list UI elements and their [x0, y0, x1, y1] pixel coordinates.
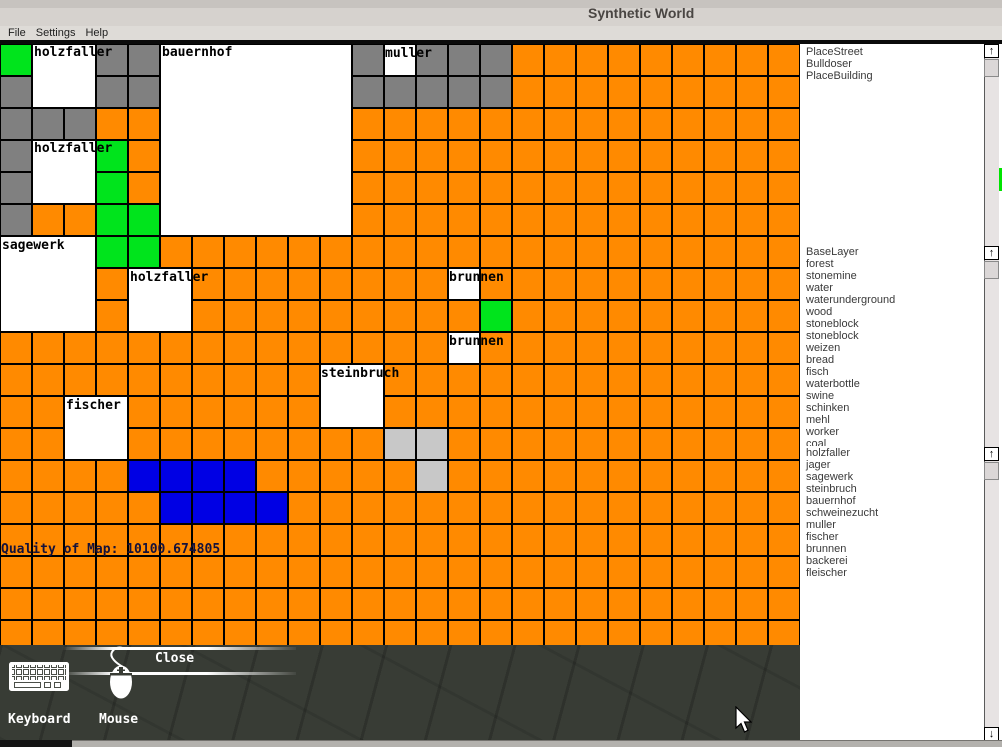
map-cell[interactable] — [512, 460, 544, 492]
map-cell[interactable] — [736, 428, 768, 460]
map-cell[interactable] — [768, 140, 800, 172]
map-cell[interactable] — [544, 44, 576, 76]
map-cell[interactable] — [576, 44, 608, 76]
map-cell[interactable] — [416, 236, 448, 268]
map-cell[interactable] — [544, 524, 576, 556]
map-cell[interactable] — [640, 332, 672, 364]
map-cell[interactable] — [608, 460, 640, 492]
map-cell[interactable] — [576, 556, 608, 588]
layer-stoneblock[interactable]: stoneblock — [800, 318, 983, 330]
map-cell[interactable] — [384, 620, 416, 645]
map-cell[interactable] — [672, 620, 704, 645]
map-cell[interactable] — [736, 620, 768, 645]
map-cell[interactable] — [288, 364, 320, 396]
map-cell[interactable] — [768, 268, 800, 300]
map-cell[interactable] — [640, 588, 672, 620]
map-cell[interactable] — [0, 620, 32, 645]
map-cell[interactable] — [544, 588, 576, 620]
map-cell[interactable] — [576, 620, 608, 645]
mouse-label[interactable]: Mouse — [99, 713, 138, 727]
map-cell[interactable] — [736, 76, 768, 108]
map-cell[interactable] — [256, 300, 288, 332]
map-cell[interactable] — [480, 396, 512, 428]
map-cell[interactable] — [736, 108, 768, 140]
map-cell[interactable] — [32, 588, 64, 620]
map-cell[interactable] — [512, 492, 544, 524]
map-cell[interactable] — [736, 44, 768, 76]
map-cell[interactable] — [448, 364, 480, 396]
map-cell[interactable] — [416, 364, 448, 396]
map-cell[interactable] — [704, 204, 736, 236]
map-cell[interactable] — [448, 588, 480, 620]
map-cell[interactable] — [672, 492, 704, 524]
layer-water[interactable]: water — [800, 282, 983, 294]
map-cell[interactable] — [320, 524, 352, 556]
map-cell[interactable] — [640, 556, 672, 588]
map-cell[interactable] — [512, 524, 544, 556]
map-cell[interactable] — [672, 76, 704, 108]
map-cell[interactable] — [0, 332, 32, 364]
map-cell[interactable] — [0, 460, 32, 492]
map-cell[interactable] — [128, 332, 160, 364]
map-cell[interactable] — [608, 300, 640, 332]
map-cell[interactable] — [704, 236, 736, 268]
map-cell[interactable] — [288, 460, 320, 492]
menu-item-settings[interactable]: Settings — [36, 26, 76, 40]
map-cell[interactable] — [0, 396, 32, 428]
map-cell[interactable] — [352, 268, 384, 300]
map-cell[interactable] — [224, 428, 256, 460]
map-cell[interactable] — [704, 428, 736, 460]
map-cell[interactable] — [768, 620, 800, 645]
layer-fisch[interactable]: fisch — [800, 366, 983, 378]
map-cell[interactable] — [448, 524, 480, 556]
map-cell[interactable] — [352, 556, 384, 588]
map-cell[interactable] — [192, 396, 224, 428]
map-cell[interactable] — [288, 300, 320, 332]
map-cell[interactable] — [736, 204, 768, 236]
map-cell[interactable] — [384, 460, 416, 492]
map-cell[interactable] — [352, 428, 384, 460]
map-cell[interactable] — [448, 204, 480, 236]
map-cell[interactable] — [544, 620, 576, 645]
map-cell[interactable] — [768, 588, 800, 620]
map-cell[interactable] — [288, 268, 320, 300]
map-cell[interactable] — [448, 492, 480, 524]
map-cell[interactable] — [384, 172, 416, 204]
map-cell[interactable] — [672, 460, 704, 492]
map-cell[interactable] — [224, 236, 256, 268]
map-cell[interactable] — [480, 492, 512, 524]
layer-baselayer[interactable]: BaseLayer — [800, 246, 983, 258]
map-cell[interactable] — [480, 172, 512, 204]
map-cell[interactable] — [768, 556, 800, 588]
map-cell[interactable] — [416, 620, 448, 645]
map-cell[interactable] — [256, 428, 288, 460]
map-cell[interactable] — [480, 460, 512, 492]
map-cell[interactable] — [192, 492, 224, 524]
map-cell[interactable] — [768, 172, 800, 204]
map-cell[interactable] — [672, 172, 704, 204]
map-cell[interactable] — [64, 556, 96, 588]
map-cell[interactable] — [96, 268, 128, 300]
map-cell[interactable] — [448, 172, 480, 204]
layer-stonemine[interactable]: stonemine — [800, 270, 983, 282]
map-cell[interactable] — [256, 492, 288, 524]
map-cell[interactable] — [640, 76, 672, 108]
map-cell[interactable] — [512, 44, 544, 76]
map-cell[interactable] — [480, 108, 512, 140]
layer-waterbottle[interactable]: waterbottle — [800, 378, 983, 390]
map-cell[interactable] — [448, 460, 480, 492]
map-cell[interactable] — [256, 236, 288, 268]
building-option-fischer[interactable]: fischer — [800, 531, 983, 543]
map-cell[interactable] — [512, 76, 544, 108]
building-option-brunnen[interactable]: brunnen — [800, 543, 983, 555]
map-cell[interactable] — [384, 492, 416, 524]
map-cell[interactable] — [416, 76, 448, 108]
map-cell[interactable] — [160, 620, 192, 645]
map-cell[interactable] — [384, 556, 416, 588]
map-cell[interactable] — [736, 364, 768, 396]
map-cell[interactable] — [768, 300, 800, 332]
scroll-up-icon[interactable]: ↑ — [984, 447, 999, 461]
map-cell[interactable] — [512, 428, 544, 460]
map-cell[interactable] — [224, 268, 256, 300]
map-cell[interactable] — [736, 140, 768, 172]
map-cell[interactable] — [704, 140, 736, 172]
map-cell[interactable] — [160, 556, 192, 588]
map-cell[interactable] — [768, 428, 800, 460]
map-cell[interactable] — [32, 556, 64, 588]
map-cell[interactable] — [384, 588, 416, 620]
map-cell[interactable] — [672, 556, 704, 588]
map-cell[interactable] — [160, 396, 192, 428]
map-cell[interactable] — [512, 140, 544, 172]
map-cell[interactable] — [608, 108, 640, 140]
map-cell[interactable] — [576, 300, 608, 332]
map-cell[interactable] — [160, 364, 192, 396]
map-cell[interactable] — [192, 300, 224, 332]
map-cell[interactable] — [320, 428, 352, 460]
map-cell[interactable] — [224, 332, 256, 364]
map-cell[interactable] — [544, 492, 576, 524]
scroll-up-icon[interactable]: ↑ — [984, 44, 999, 58]
hscrollbar-thumb[interactable] — [72, 740, 1002, 747]
map-cell[interactable] — [96, 300, 128, 332]
map-cell[interactable] — [192, 364, 224, 396]
map-cell[interactable] — [0, 364, 32, 396]
building-option-jager[interactable]: jager — [800, 459, 983, 471]
map-cell[interactable] — [512, 588, 544, 620]
map-cell[interactable] — [576, 108, 608, 140]
map-cell[interactable] — [320, 460, 352, 492]
layer-wood[interactable]: wood — [800, 306, 983, 318]
map-cell[interactable] — [448, 108, 480, 140]
map-cell[interactable] — [352, 44, 384, 76]
map-cell[interactable] — [384, 140, 416, 172]
map-cell[interactable] — [192, 236, 224, 268]
map-cell[interactable] — [704, 44, 736, 76]
map-cell[interactable] — [576, 204, 608, 236]
map-cell[interactable] — [224, 460, 256, 492]
map-cell[interactable] — [640, 140, 672, 172]
map-cell[interactable] — [160, 428, 192, 460]
map-cell[interactable] — [448, 76, 480, 108]
map-cell[interactable] — [416, 556, 448, 588]
map-cell[interactable] — [640, 460, 672, 492]
map-cell[interactable] — [352, 460, 384, 492]
map-cell[interactable] — [480, 428, 512, 460]
map-cell[interactable] — [608, 588, 640, 620]
map-cell[interactable] — [736, 556, 768, 588]
map-cell[interactable] — [128, 140, 160, 172]
map-cell[interactable] — [128, 364, 160, 396]
map-cell[interactable] — [64, 108, 96, 140]
map-cell[interactable] — [32, 204, 64, 236]
map-cell[interactable] — [384, 428, 416, 460]
map-cell[interactable] — [416, 172, 448, 204]
map-cell[interactable] — [768, 44, 800, 76]
map-cell[interactable] — [192, 460, 224, 492]
map-cell[interactable] — [608, 140, 640, 172]
map-cell[interactable] — [192, 556, 224, 588]
map-cell[interactable] — [768, 76, 800, 108]
map-cell[interactable] — [576, 236, 608, 268]
scrollbar-track[interactable] — [984, 44, 999, 741]
map-cell[interactable] — [512, 620, 544, 645]
map-cell[interactable] — [128, 492, 160, 524]
map-cell[interactable] — [256, 268, 288, 300]
map-cell[interactable] — [224, 396, 256, 428]
map-cell[interactable] — [448, 140, 480, 172]
map-cell[interactable] — [352, 204, 384, 236]
map-cell[interactable] — [576, 428, 608, 460]
tool-bulldoser[interactable]: Bulldoser — [800, 58, 983, 70]
map-cell[interactable] — [544, 428, 576, 460]
map-cell[interactable] — [576, 140, 608, 172]
map-cell[interactable] — [512, 172, 544, 204]
map-cell[interactable] — [320, 556, 352, 588]
map-cell[interactable] — [352, 76, 384, 108]
map-cell[interactable] — [672, 332, 704, 364]
map-cell[interactable] — [704, 108, 736, 140]
map-cell[interactable] — [672, 44, 704, 76]
map-cell[interactable] — [256, 332, 288, 364]
map-cell[interactable] — [608, 428, 640, 460]
scrollbar-thumb[interactable] — [984, 462, 999, 480]
map-cell[interactable] — [64, 588, 96, 620]
map-cell[interactable] — [96, 236, 128, 268]
map-cell[interactable] — [608, 620, 640, 645]
map-cell[interactable] — [288, 428, 320, 460]
map-cell[interactable] — [672, 140, 704, 172]
map-cell[interactable] — [160, 588, 192, 620]
map-cell[interactable] — [320, 268, 352, 300]
map-cell[interactable] — [0, 140, 32, 172]
map-cell[interactable] — [704, 524, 736, 556]
map-cell[interactable] — [672, 204, 704, 236]
keyboard-icon[interactable] — [9, 662, 69, 691]
map-cell[interactable] — [448, 428, 480, 460]
map-cell[interactable] — [320, 300, 352, 332]
map-cell[interactable] — [704, 492, 736, 524]
map-cell[interactable] — [448, 44, 480, 76]
map-cell[interactable] — [0, 204, 32, 236]
map-cell[interactable] — [480, 236, 512, 268]
scrollbar-thumb[interactable] — [984, 59, 999, 77]
map-cell[interactable] — [704, 268, 736, 300]
map-cell[interactable] — [0, 492, 32, 524]
map-cell[interactable] — [256, 396, 288, 428]
map-cell[interactable] — [224, 300, 256, 332]
map-cell[interactable] — [512, 396, 544, 428]
map-cell[interactable] — [352, 588, 384, 620]
map-cell[interactable] — [672, 236, 704, 268]
map-cell[interactable] — [608, 556, 640, 588]
map-cell[interactable] — [544, 396, 576, 428]
map-cell[interactable] — [544, 140, 576, 172]
map-cell[interactable] — [96, 172, 128, 204]
map-cell[interactable] — [640, 300, 672, 332]
map-cell[interactable] — [256, 588, 288, 620]
map-cell[interactable] — [96, 460, 128, 492]
map-cell[interactable] — [32, 620, 64, 645]
map-cell[interactable] — [640, 492, 672, 524]
building-option-holzfaller[interactable]: holzfaller — [800, 447, 983, 459]
scroll-down-icon[interactable]: ↓ — [984, 727, 999, 741]
map-cell[interactable] — [96, 620, 128, 645]
map-cell[interactable] — [672, 396, 704, 428]
map-cell[interactable] — [0, 588, 32, 620]
layer-waterunderground[interactable]: waterunderground — [800, 294, 983, 306]
map-cell[interactable] — [256, 364, 288, 396]
tool-placestreet[interactable]: PlaceStreet — [800, 46, 983, 58]
map-cell[interactable] — [704, 332, 736, 364]
map-cell[interactable] — [704, 396, 736, 428]
map-cell[interactable] — [704, 556, 736, 588]
map-cell[interactable] — [224, 620, 256, 645]
map-cell[interactable] — [768, 236, 800, 268]
map-cell[interactable] — [0, 76, 32, 108]
map-cell[interactable] — [416, 396, 448, 428]
map-cell[interactable] — [512, 364, 544, 396]
map-cell[interactable] — [0, 428, 32, 460]
map-cell[interactable] — [672, 364, 704, 396]
map-cell[interactable] — [64, 492, 96, 524]
map-cell[interactable] — [576, 172, 608, 204]
map-cell[interactable] — [704, 76, 736, 108]
map-cell[interactable] — [352, 524, 384, 556]
map-cell[interactable] — [352, 300, 384, 332]
map-cell[interactable] — [96, 492, 128, 524]
close-button[interactable]: Close — [155, 652, 194, 666]
map-cell[interactable] — [640, 172, 672, 204]
map-cell[interactable] — [704, 172, 736, 204]
map-cell[interactable] — [544, 556, 576, 588]
map-cell[interactable] — [480, 588, 512, 620]
map-cell[interactable] — [704, 620, 736, 645]
map-cell[interactable] — [96, 364, 128, 396]
map-cell[interactable] — [448, 300, 480, 332]
map-cell[interactable] — [448, 236, 480, 268]
map-cell[interactable] — [544, 460, 576, 492]
menu-item-help[interactable]: Help — [85, 26, 108, 40]
map-cell[interactable] — [128, 236, 160, 268]
map-cell[interactable] — [160, 332, 192, 364]
map-cell[interactable] — [768, 460, 800, 492]
map-cell[interactable] — [32, 396, 64, 428]
map-cell[interactable] — [768, 524, 800, 556]
map-cell[interactable] — [96, 204, 128, 236]
layer-schinken[interactable]: schinken — [800, 402, 983, 414]
map-cell[interactable] — [192, 428, 224, 460]
map-cell[interactable] — [384, 236, 416, 268]
map-cell[interactable] — [576, 588, 608, 620]
map-cell[interactable] — [672, 524, 704, 556]
map-cell[interactable] — [544, 300, 576, 332]
map-cell[interactable] — [416, 204, 448, 236]
map-cell[interactable] — [288, 236, 320, 268]
map-cell[interactable] — [320, 492, 352, 524]
map-cell[interactable] — [544, 236, 576, 268]
map-cell[interactable] — [96, 588, 128, 620]
map-cell[interactable] — [256, 524, 288, 556]
map-cell[interactable] — [0, 556, 32, 588]
map-cell[interactable] — [64, 460, 96, 492]
map-cell[interactable] — [640, 108, 672, 140]
map-cell[interactable] — [384, 300, 416, 332]
map-cell[interactable] — [736, 524, 768, 556]
building-option-schweinezucht[interactable]: schweinezucht — [800, 507, 983, 519]
building-option-steinbruch[interactable]: steinbruch — [800, 483, 983, 495]
map-cell[interactable] — [544, 204, 576, 236]
map-cell[interactable] — [32, 364, 64, 396]
map-cell[interactable] — [768, 204, 800, 236]
map-cell[interactable] — [256, 620, 288, 645]
map-cell[interactable] — [512, 332, 544, 364]
map-cell[interactable] — [128, 204, 160, 236]
map-cell[interactable] — [352, 492, 384, 524]
map-cell[interactable] — [384, 204, 416, 236]
map-cell[interactable] — [0, 108, 32, 140]
map-cell[interactable] — [480, 300, 512, 332]
map-cell[interactable] — [672, 428, 704, 460]
map-cell[interactable] — [224, 492, 256, 524]
map-cell[interactable] — [32, 108, 64, 140]
map-cell[interactable] — [736, 396, 768, 428]
layer-bread[interactable]: bread — [800, 354, 983, 366]
map-cell[interactable] — [256, 556, 288, 588]
map-cell[interactable] — [416, 108, 448, 140]
map-cell[interactable] — [736, 492, 768, 524]
map-cell[interactable] — [640, 620, 672, 645]
map-cell[interactable] — [96, 556, 128, 588]
map-cell[interactable] — [608, 76, 640, 108]
map-cell[interactable] — [320, 332, 352, 364]
map-cell[interactable] — [608, 364, 640, 396]
map-cell[interactable] — [128, 556, 160, 588]
map-cell[interactable] — [576, 396, 608, 428]
map-cell[interactable] — [576, 492, 608, 524]
map-cell[interactable] — [288, 620, 320, 645]
map-cell[interactable] — [384, 524, 416, 556]
map-cell[interactable] — [416, 428, 448, 460]
map-cell[interactable] — [128, 172, 160, 204]
map-cell[interactable] — [544, 76, 576, 108]
map-cell[interactable] — [576, 268, 608, 300]
map-cell[interactable] — [416, 300, 448, 332]
